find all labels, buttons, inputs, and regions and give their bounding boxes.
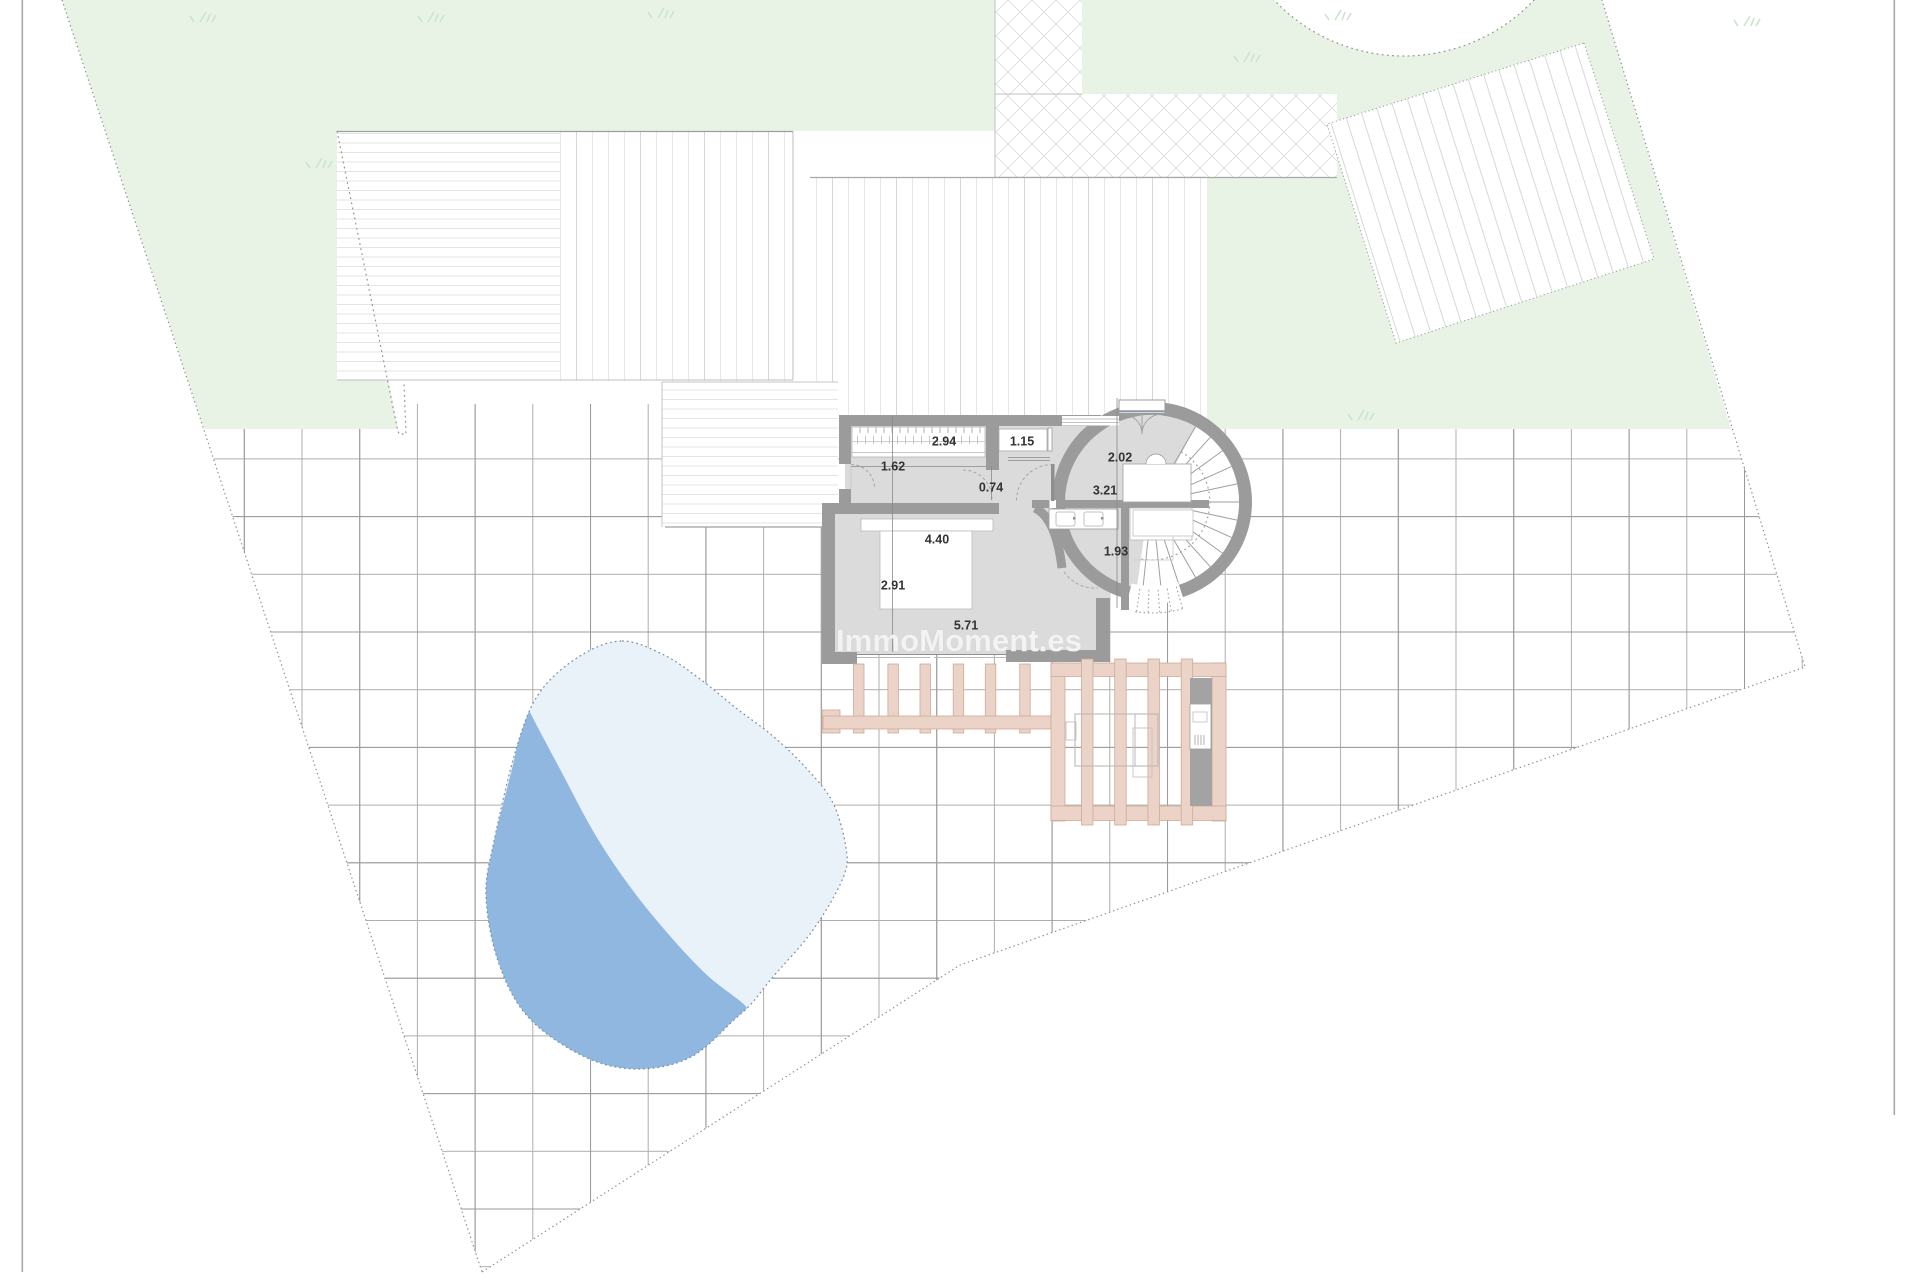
svg-text:2.02: 2.02 [1108,450,1132,464]
svg-text:2.94: 2.94 [932,434,956,448]
svg-text:1.62: 1.62 [881,459,905,473]
svg-text:2.91: 2.91 [881,578,905,592]
svg-text:1.93: 1.93 [1104,544,1128,558]
svg-text:3.21: 3.21 [1093,483,1117,497]
svg-text:0.74: 0.74 [979,480,1003,494]
svg-text:1.15: 1.15 [1010,434,1034,448]
svg-text:4.40: 4.40 [925,532,949,546]
svg-text:ImmoMoment.es: ImmoMoment.es [836,623,1082,658]
